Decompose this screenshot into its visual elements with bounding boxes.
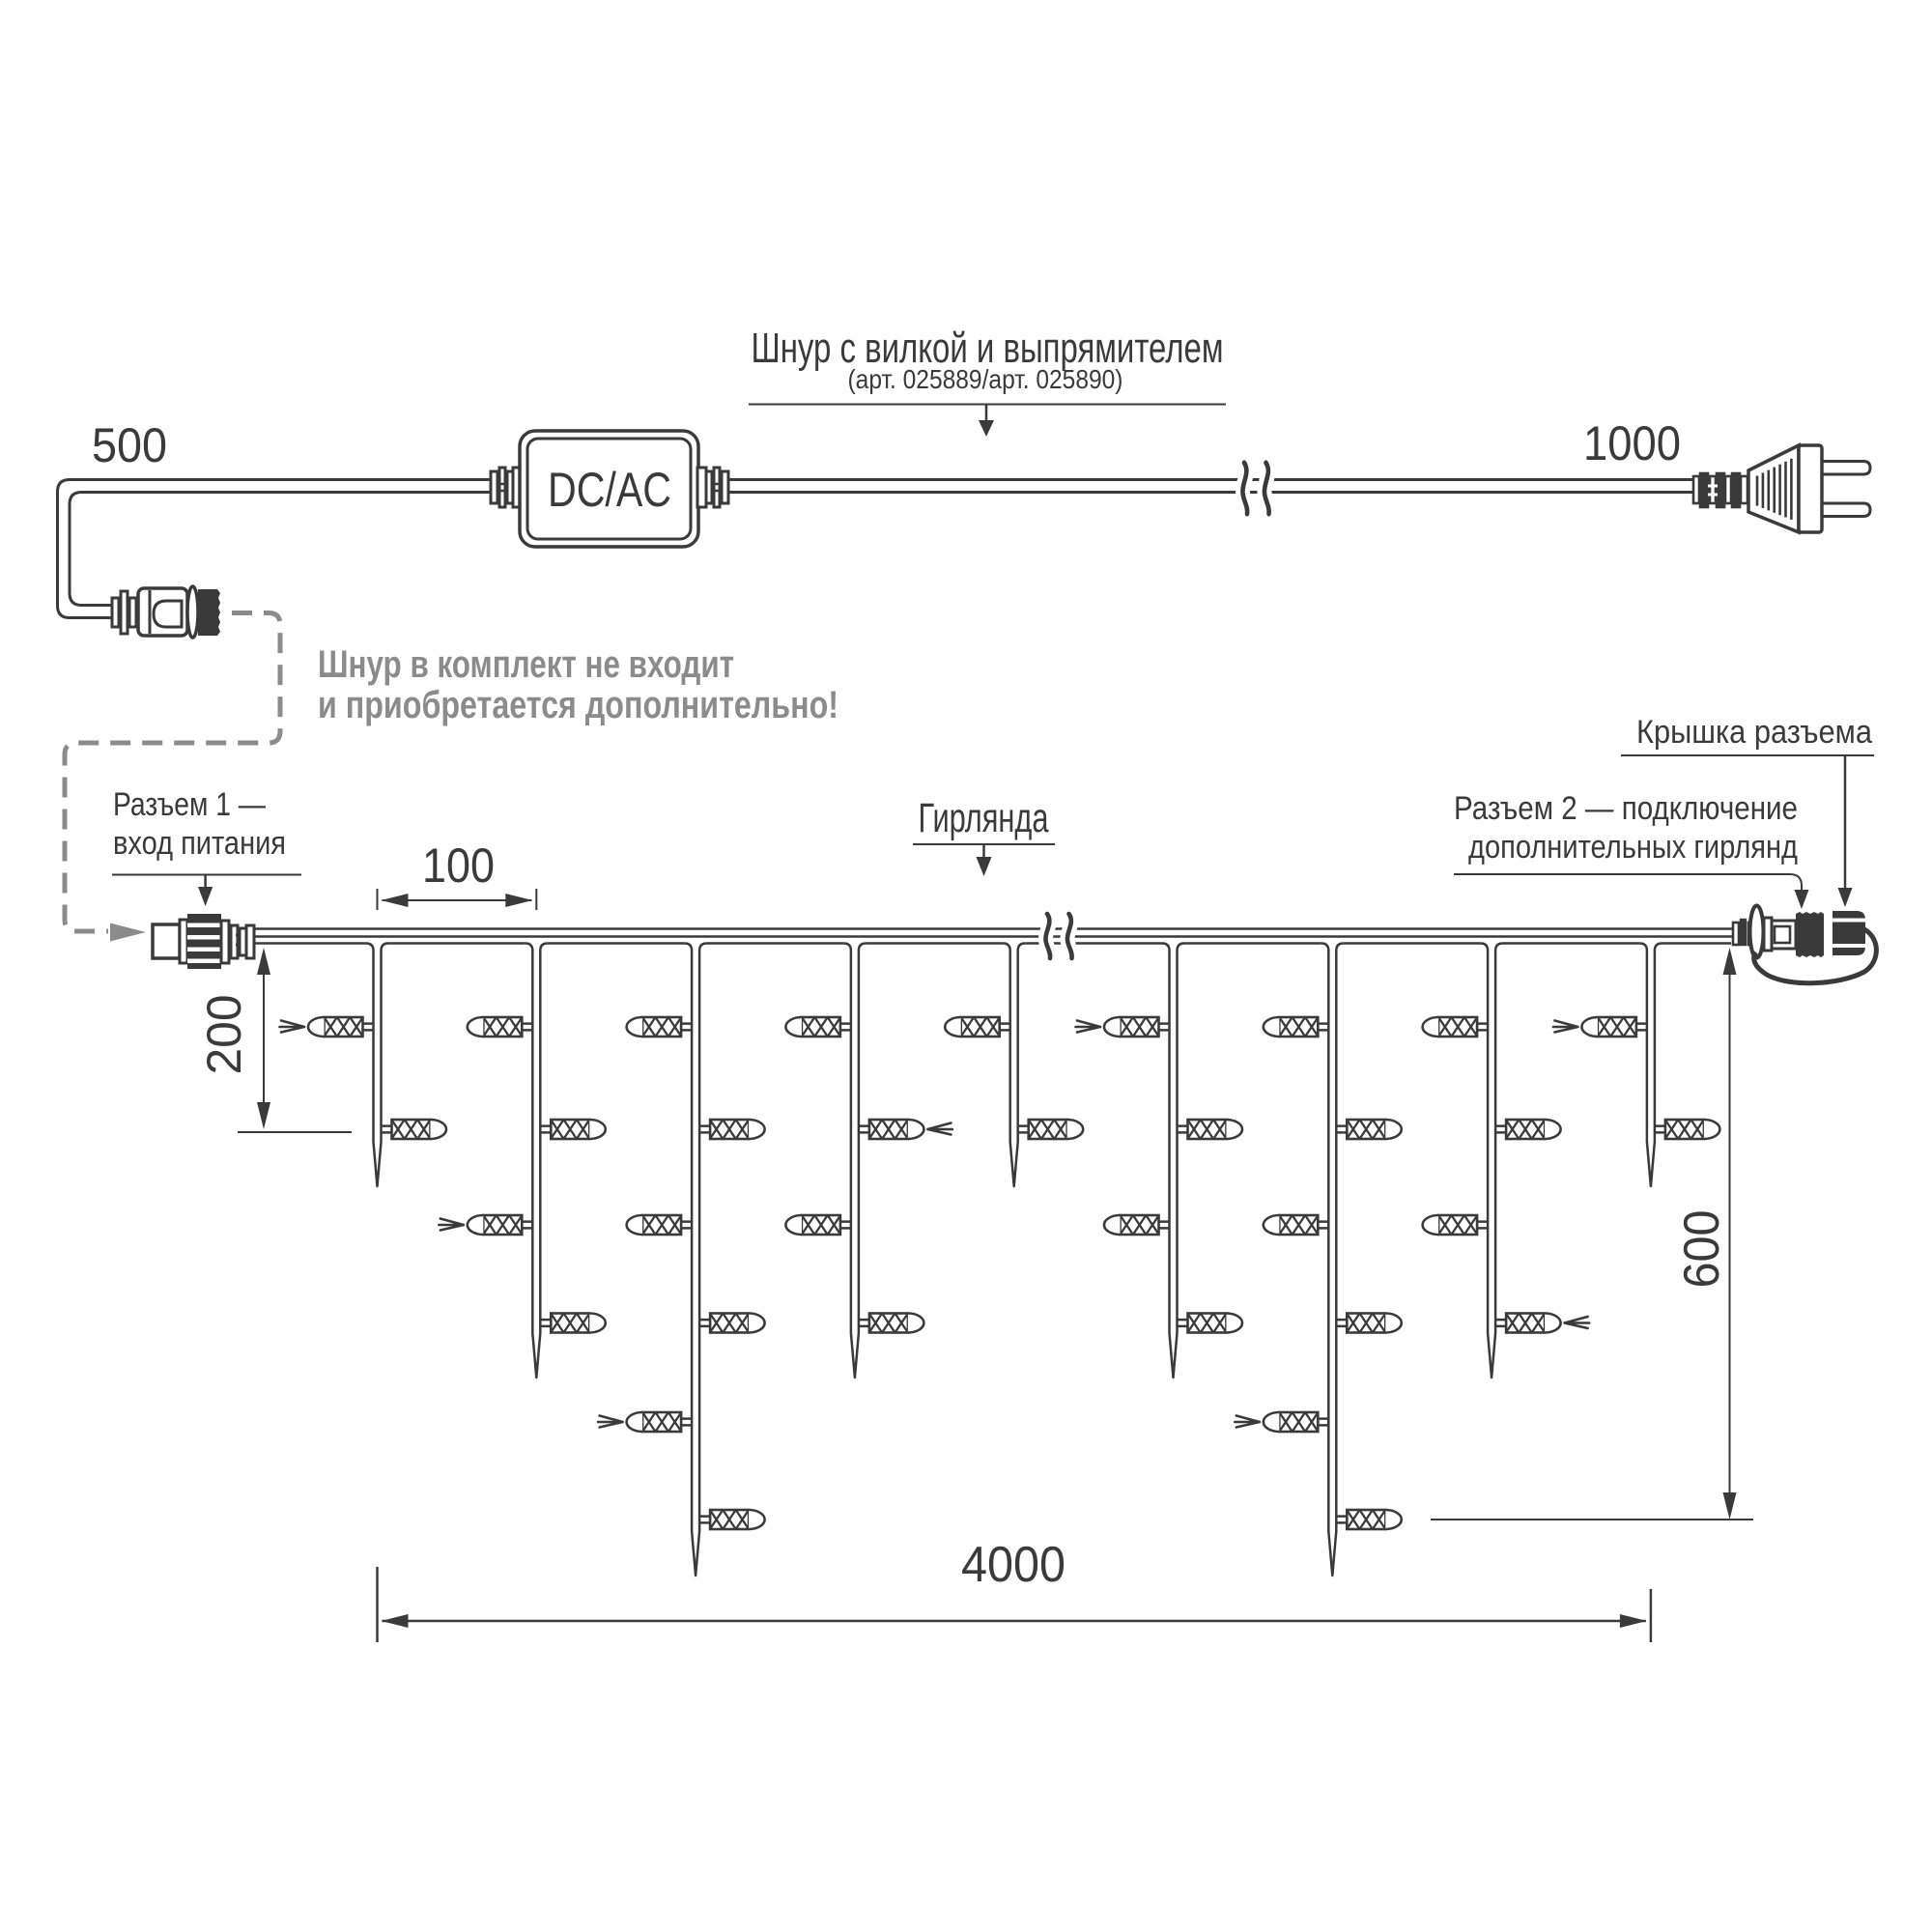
svg-text:вход питания: вход питания <box>113 825 286 862</box>
svg-text:200: 200 <box>197 995 251 1075</box>
svg-text:Крышка разъема: Крышка разъема <box>1636 714 1872 751</box>
svg-text:1000: 1000 <box>1583 416 1681 470</box>
svg-text:Разъем 2 — подключение: Разъем 2 — подключение <box>1454 790 1798 827</box>
svg-text:и приобретается дополнительно!: и приобретается дополнительно! <box>318 684 838 726</box>
svg-text:Шнур в комплект не входит: Шнур в комплект не входит <box>318 643 734 686</box>
svg-text:600: 600 <box>1674 1210 1730 1289</box>
svg-text:Гирлянда: Гирлянда <box>919 796 1049 841</box>
svg-text:Разъем 1 —: Разъем 1 — <box>113 786 266 823</box>
svg-text:4000: 4000 <box>961 1537 1065 1593</box>
svg-text:(арт. 025889/арт. 025890): (арт. 025889/арт. 025890) <box>848 364 1123 394</box>
svg-text:100: 100 <box>422 838 495 893</box>
svg-text:дополнительных гирлянд: дополнительных гирлянд <box>1468 829 1798 866</box>
svg-text:500: 500 <box>92 418 167 472</box>
svg-text:DC/AC: DC/AC <box>548 463 671 517</box>
